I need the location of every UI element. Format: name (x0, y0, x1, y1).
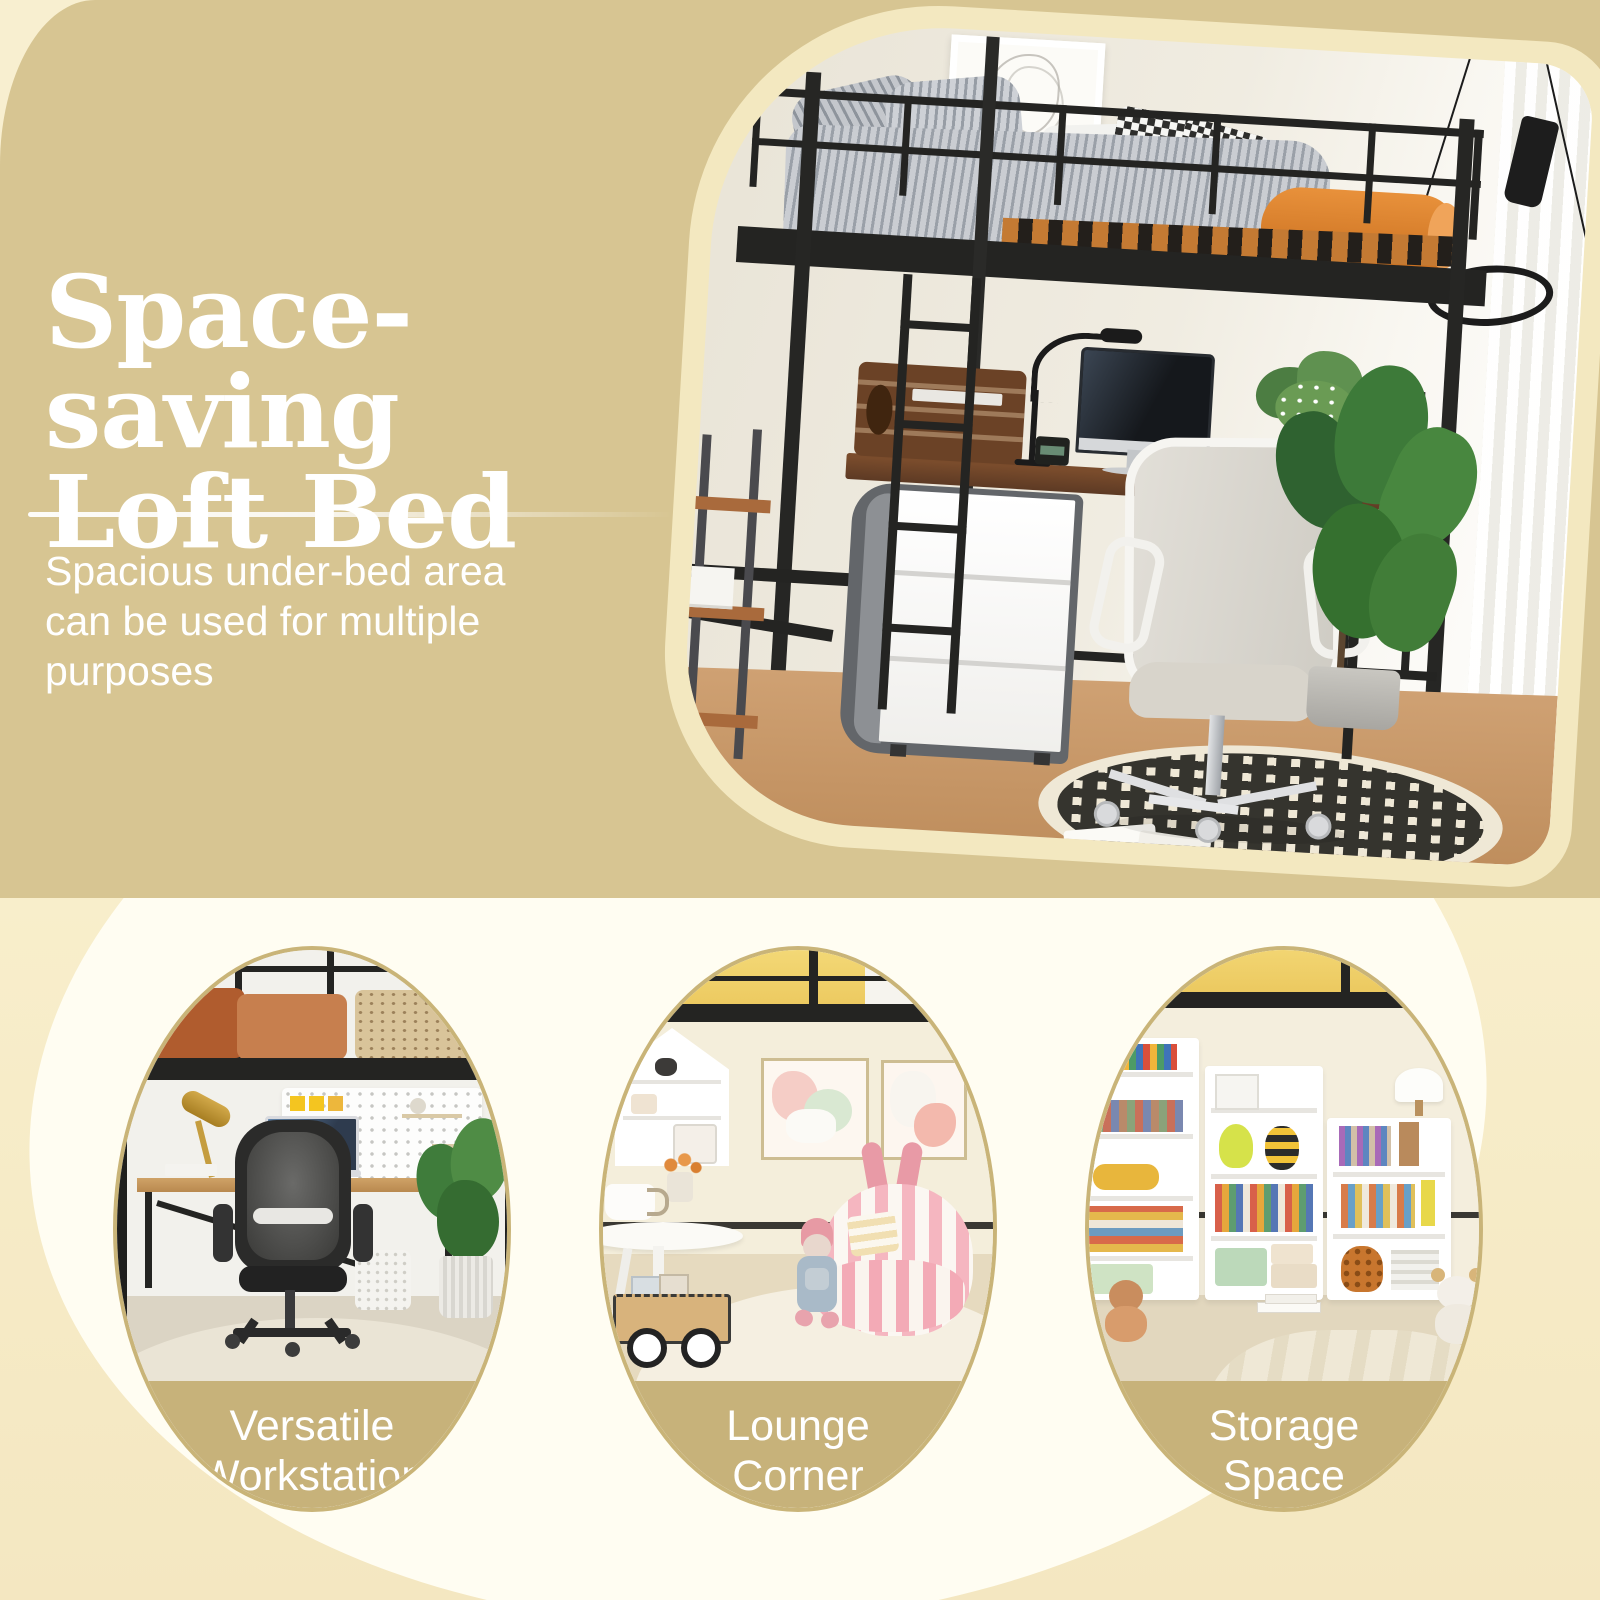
feature-label-line: Lounge (603, 1401, 993, 1451)
plant-pot (1305, 666, 1400, 731)
title-line-1: Space-saving (45, 262, 685, 462)
books-row (1339, 1126, 1391, 1166)
books (677, 565, 735, 609)
table-top (599, 1222, 743, 1250)
bed-deck-rail (1089, 992, 1483, 1008)
floor-plant (1263, 349, 1485, 740)
pencil-cup (1399, 1122, 1419, 1166)
caster-wheel (285, 1342, 300, 1357)
caster-wheel (345, 1334, 360, 1349)
bookshelf-left (1085, 1038, 1199, 1300)
wooden-toy-cart (613, 1288, 729, 1358)
hero-photo-frame (654, 0, 1600, 890)
stacked-books (1087, 1206, 1183, 1252)
cushion (237, 994, 347, 1060)
feature-label-line: Storage (1089, 1401, 1479, 1451)
toy-bunny (1219, 1124, 1253, 1168)
storage-case (1271, 1264, 1317, 1288)
toy (655, 1058, 677, 1076)
page-title: Space-saving Loft Bed (45, 262, 685, 562)
cabinet-foot (890, 744, 907, 757)
feature-label-lounge: Lounge Corner (603, 1401, 993, 1502)
feature-label-workstation: Versatile Workstation (117, 1401, 507, 1502)
books-row (1341, 1184, 1415, 1228)
bed-post (117, 950, 127, 1350)
plush-lion (1101, 1280, 1151, 1342)
guardrail (117, 966, 511, 972)
desk-clock (1034, 436, 1070, 466)
books-row (1215, 1184, 1313, 1232)
caster-wheel (225, 1334, 240, 1349)
desk-leg (145, 1192, 152, 1288)
ribbed-pot (439, 1256, 493, 1318)
cart-wheel (627, 1328, 667, 1368)
subtitle-line: Spacious under-bed area (45, 546, 665, 596)
subtitle-text: Spacious under-bed area can be used for … (45, 546, 665, 696)
house-shelf (615, 1028, 729, 1166)
toy-bee (1265, 1126, 1299, 1170)
chair-cylinder (1205, 715, 1225, 796)
title-divider-line (28, 512, 673, 517)
subtitle-line: can be used for multiple (45, 596, 665, 646)
books-row (1087, 1100, 1183, 1132)
cushion (135, 988, 245, 1058)
bed-deck-rail (603, 1004, 997, 1022)
feature-photo-lounge: Lounge Corner (599, 946, 997, 1512)
bed-post (809, 950, 818, 1012)
bed-post (1151, 950, 1160, 998)
feature-label-storage: Storage Space (1089, 1401, 1479, 1502)
toy (631, 1094, 657, 1114)
feature-photo-workstation: Versatile Workstation (113, 946, 511, 1512)
guardrail (603, 976, 997, 981)
book-stack (165, 1164, 217, 1176)
woven-pillow (355, 990, 470, 1060)
feature-label-line: Versatile (117, 1401, 507, 1451)
cabinet-foot (1034, 753, 1051, 766)
caster-wheel (1093, 800, 1120, 827)
storage-box (1215, 1248, 1267, 1286)
feature-photo-storage: Storage Space (1085, 946, 1483, 1512)
plush-giraffe (1341, 1246, 1383, 1292)
loft-bed-photo (677, 15, 1595, 867)
plush-doll (793, 1218, 841, 1334)
feature-label-line: Space (1089, 1451, 1479, 1501)
book-on-floor (1265, 1294, 1317, 1304)
feature-label-line: Corner (603, 1451, 993, 1501)
subtitle-line: purposes (45, 646, 665, 696)
guardrail-post (749, 87, 762, 187)
mesh-office-chair (213, 1120, 373, 1380)
books-row (1087, 1044, 1177, 1070)
deco-box (1215, 1074, 1259, 1110)
cart-wheel (681, 1328, 721, 1368)
table-lamp (1389, 1068, 1453, 1120)
bed-deck-rail (117, 1058, 511, 1080)
plant (417, 1118, 511, 1318)
striped-pillow (846, 1211, 899, 1257)
marketing-banner: Space-saving Loft Bed Spacious under-bed… (0, 0, 1600, 1600)
white-bedding (1389, 950, 1483, 996)
bed-post (1341, 950, 1350, 998)
feature-label-line: Workstation (117, 1451, 507, 1501)
toy-submarine (1093, 1164, 1159, 1190)
toy-figure (1421, 1180, 1435, 1226)
bookshelf-middle (1205, 1066, 1323, 1300)
plush-cow (1431, 1268, 1483, 1344)
teapot-handle (647, 1188, 669, 1216)
storage-case (1271, 1244, 1313, 1264)
flowers (657, 1152, 703, 1178)
